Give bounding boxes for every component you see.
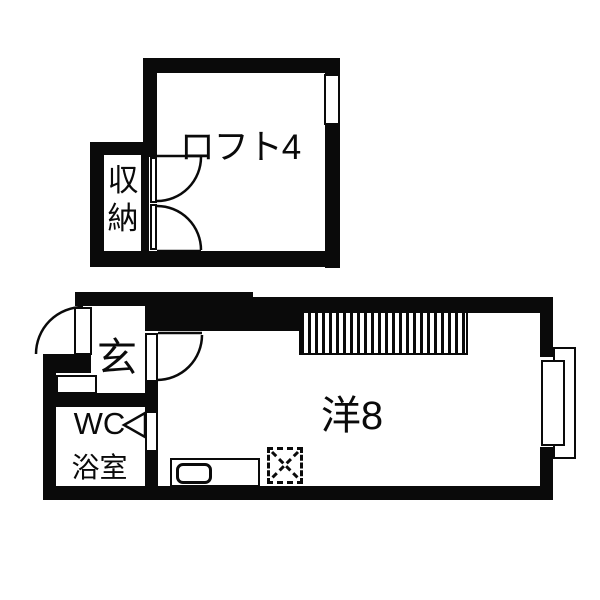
entrance-step [56,375,97,394]
entry-door-leaf [74,307,92,355]
loft-door-leaf-lower [150,204,157,250]
wall-bottom [43,486,553,500]
kitchen-sink [176,463,212,484]
room-door-swing-arc [157,335,202,380]
storage-label-char-1: 収 [101,162,145,200]
loft-window [324,74,340,125]
floor-plan-canvas: ロフト4 収 納 玄 WC 浴室 洋8 [0,0,600,600]
wall-entrance-wc-divider [43,393,158,407]
wall-right-upper [540,297,553,357]
wall-top-right [299,297,553,313]
wall-below-entry-door [44,354,91,373]
dashed-cross-marker [267,447,303,484]
main-room-label: 洋8 [298,383,406,441]
wall-top-thick-b [253,297,299,331]
bathroom-label: 浴室 [55,446,144,486]
loft-label: ロフト4 [155,119,325,170]
bay-window-sash [541,360,565,446]
loft-overhang-hatch-band [299,313,468,355]
wall-loft-bottom [90,251,340,267]
storage-label-char-2: 納 [101,200,145,238]
entrance-label: 玄 [95,325,139,383]
wc-door-leaf [145,411,158,452]
wall-wc-right-upper [145,380,158,411]
room-door-leaf [145,333,158,382]
loft-door-lower-swing-arc [157,206,201,250]
wall-top-thick-a [145,292,253,331]
wall-loft-top [143,58,340,73]
storage-label: 収 納 [101,162,145,238]
wall-wc-right-lower [145,451,158,486]
wc-label: WC [55,406,144,442]
